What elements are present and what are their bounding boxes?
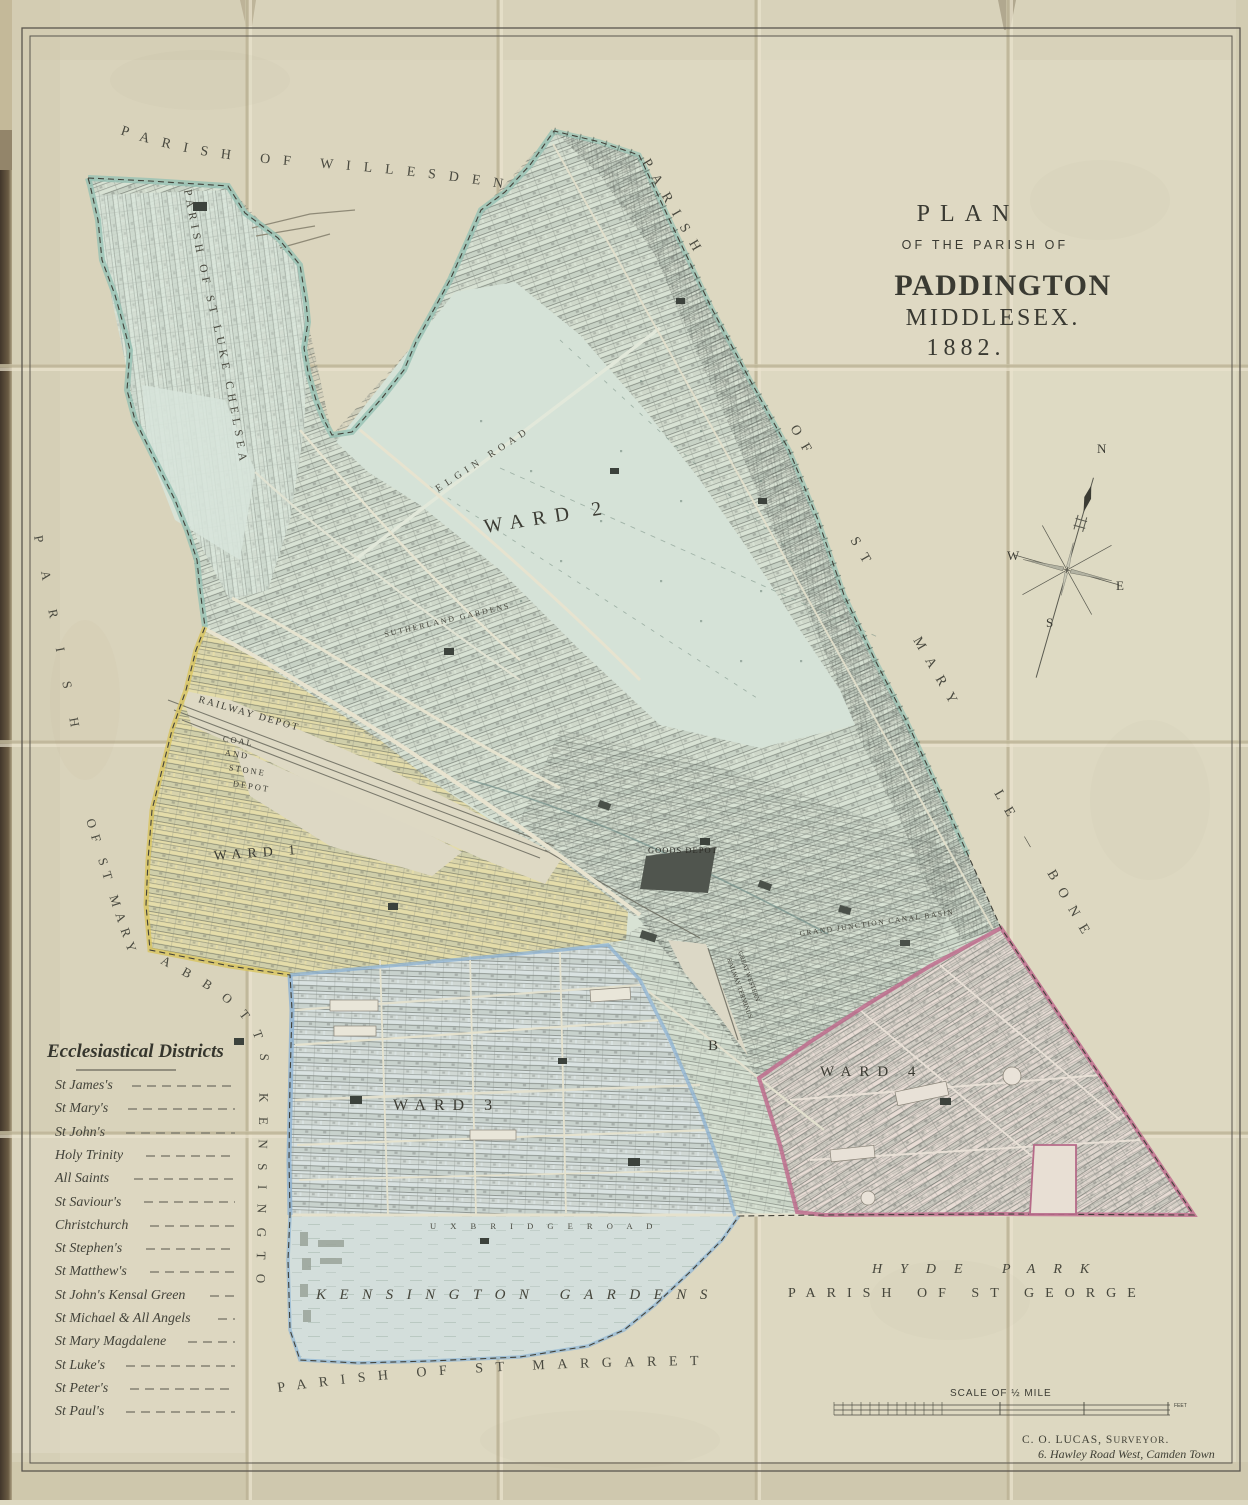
svg-text:N: N bbox=[1097, 441, 1107, 456]
svg-text:SCALE OF ½ MILE: SCALE OF ½ MILE bbox=[950, 1388, 1052, 1399]
svg-text:GOODS DEPOT: GOODS DEPOT bbox=[648, 845, 718, 855]
svg-text:6. Hawley Road West, Camden To: 6. Hawley Road West, Camden Town bbox=[1038, 1447, 1215, 1461]
svg-text:MIDDLESEX.: MIDDLESEX. bbox=[906, 305, 1081, 331]
svg-text:WARD 4: WARD 4 bbox=[820, 1064, 923, 1080]
svg-text:St Saviour's: St Saviour's bbox=[55, 1195, 122, 1210]
svg-text:S: S bbox=[1046, 615, 1053, 630]
svg-text:St Mary Magdalene: St Mary Magdalene bbox=[55, 1334, 166, 1349]
svg-text:WARD 3: WARD 3 bbox=[393, 1097, 500, 1114]
svg-text:KENSINGTON GARDENS: KENSINGTON GARDENS bbox=[315, 1287, 721, 1303]
svg-text:St John's: St John's bbox=[55, 1125, 106, 1140]
svg-text:St Luke's: St Luke's bbox=[55, 1358, 106, 1373]
svg-text:Ecclesiastical Districts: Ecclesiastical Districts bbox=[46, 1041, 224, 1062]
svg-text:Christchurch: Christchurch bbox=[55, 1218, 128, 1233]
svg-text:St Matthew's: St Matthew's bbox=[55, 1264, 127, 1279]
svg-text:St Michael & All Angels: St Michael & All Angels bbox=[55, 1311, 191, 1326]
svg-text:1882.: 1882. bbox=[927, 335, 1006, 361]
svg-text:W: W bbox=[1007, 548, 1020, 563]
svg-text:St Paul's: St Paul's bbox=[55, 1404, 105, 1419]
svg-text:E: E bbox=[1116, 578, 1124, 593]
svg-text:PADDINGTON: PADDINGTON bbox=[894, 269, 1111, 302]
svg-text:B: B bbox=[708, 1038, 718, 1054]
svg-text:St Stephen's: St Stephen's bbox=[55, 1241, 123, 1256]
svg-text:OF THE PARISH OF: OF THE PARISH OF bbox=[902, 238, 1069, 252]
svg-text:PLAN: PLAN bbox=[917, 201, 1020, 227]
svg-text:Holy Trinity: Holy Trinity bbox=[54, 1148, 124, 1163]
svg-text:All Saints: All Saints bbox=[54, 1171, 110, 1186]
svg-text:C. O. LUCAS, SURVEYOR.: C. O. LUCAS, SURVEYOR. bbox=[1022, 1434, 1169, 1446]
svg-text:St John's Kensal Green: St John's Kensal Green bbox=[55, 1288, 185, 1303]
svg-text:U X B R I D G E R O A D: U X B R I D G E R O A D bbox=[430, 1221, 658, 1231]
svg-text:St James's: St James's bbox=[55, 1078, 113, 1093]
svg-text:St Mary's: St Mary's bbox=[55, 1101, 109, 1116]
svg-text:St Peter's: St Peter's bbox=[55, 1381, 109, 1396]
svg-text:FEET: FEET bbox=[1174, 1403, 1187, 1409]
